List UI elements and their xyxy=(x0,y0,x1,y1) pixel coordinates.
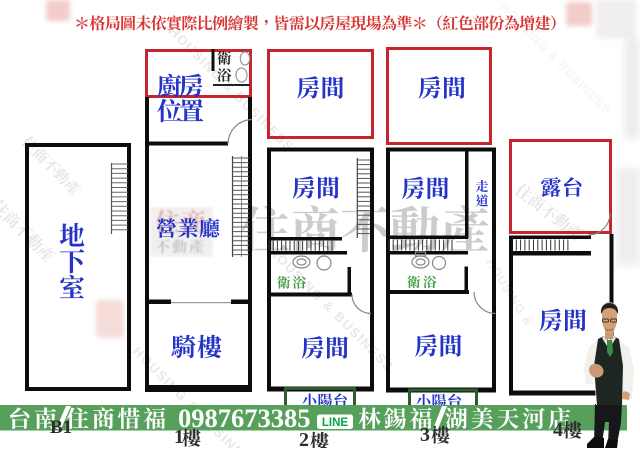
svg-text:LINE: LINE xyxy=(322,417,349,429)
svg-text:1: 1 xyxy=(174,426,184,448)
svg-text:3: 3 xyxy=(420,424,430,446)
svg-text:0987673385: 0987673385 xyxy=(178,403,311,433)
svg-text:4: 4 xyxy=(553,419,563,441)
svg-text:2: 2 xyxy=(299,429,309,448)
svg-text:B1: B1 xyxy=(50,417,72,438)
